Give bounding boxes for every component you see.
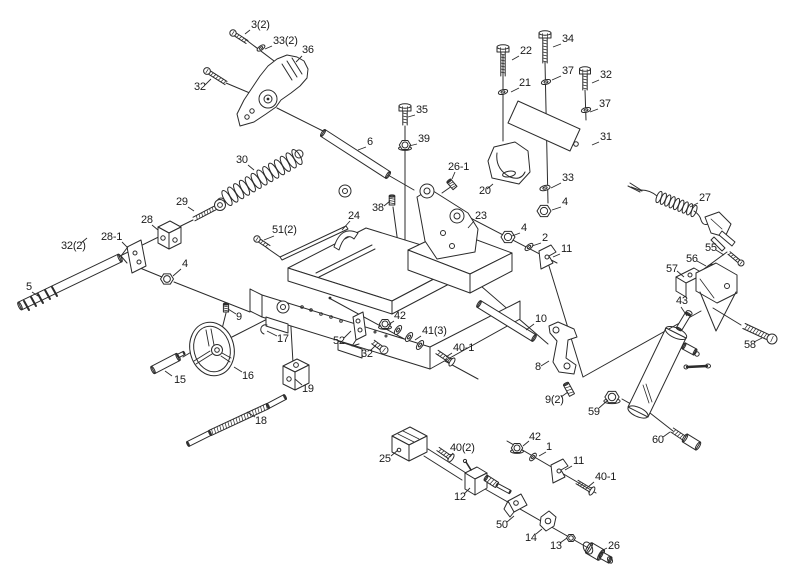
part-label-14: 14 (525, 532, 537, 544)
part-label-56: 56 (686, 253, 698, 265)
part-label-35: 35 (416, 104, 428, 116)
part-label-40-2: 40(2) (450, 442, 475, 454)
diagram-canvas: 3(2)33(2)363230292828-132(2)546353926-13… (0, 0, 792, 574)
part-label-6: 6 (367, 136, 373, 148)
part-label-25: 25 (379, 453, 391, 465)
part-label-33: 33 (562, 172, 574, 184)
part-label-24: 24 (348, 210, 360, 222)
part-label-19: 19 (302, 383, 314, 395)
part-label-52: 52 (333, 335, 345, 347)
part-label-1: 1 (546, 441, 552, 453)
part-label-8: 8 (535, 361, 541, 373)
part-label-18: 18 (255, 415, 267, 427)
part-label-36: 36 (302, 44, 314, 56)
part-label-10: 10 (535, 313, 547, 325)
part-label-17: 17 (277, 333, 289, 345)
part-label-21: 21 (519, 77, 531, 89)
part-label-39: 39 (418, 133, 430, 145)
part-label-12: 12 (454, 491, 466, 503)
part-label-4-b: 4 (521, 222, 527, 234)
part-label-9-2: 9(2) (545, 394, 564, 406)
part-label-57: 57 (666, 263, 678, 275)
part-label-59: 59 (588, 406, 600, 418)
part-label-42-bot: 42 (529, 431, 541, 443)
part-label-4-a: 4 (562, 196, 568, 208)
part-label-40-1-a: 40-1 (453, 342, 474, 354)
part-label-37-a: 37 (562, 65, 574, 77)
part-label-4-left: 4 (182, 258, 188, 270)
part-label-28-1: 28-1 (101, 231, 122, 243)
part-label-58: 58 (744, 339, 756, 351)
part-label-28: 28 (141, 214, 153, 226)
part-label-40-1-b: 40-1 (595, 471, 616, 483)
part-label-2: 2 (542, 232, 548, 244)
part-label-26-1: 26-1 (448, 161, 469, 173)
part-label-13: 13 (550, 540, 562, 552)
part-label-5: 5 (26, 281, 32, 293)
part-label-60: 60 (652, 434, 664, 446)
part-label-29: 29 (176, 196, 188, 208)
part-label-9: 9 (236, 311, 242, 323)
part-label-16: 16 (242, 370, 254, 382)
part-label-26-knob: 26 (608, 540, 620, 552)
part-label-41-3: 41(3) (422, 325, 447, 337)
part-label-32-tl: 32 (194, 81, 206, 93)
part-label-23: 23 (475, 210, 487, 222)
part-label-27: 27 (699, 192, 711, 204)
part-label-50: 50 (496, 519, 508, 531)
part-label-42-top: 42 (394, 310, 406, 322)
part-label-3-2: 3(2) (251, 19, 270, 31)
part-label-51-2: 51(2) (272, 224, 297, 236)
exploded-parts-diagram: 3(2)33(2)363230292828-132(2)546353926-13… (0, 0, 792, 574)
part-label-31: 31 (600, 131, 612, 143)
part-label-30: 30 (236, 154, 248, 166)
part-label-11-bot: 11 (573, 455, 584, 467)
part-label-20: 20 (479, 185, 491, 197)
part-label-11-mid: 11 (561, 243, 572, 255)
part-label-34: 34 (562, 33, 574, 45)
part-label-22: 22 (520, 45, 532, 57)
part-label-32-r: 32 (600, 69, 612, 81)
part-label-38: 38 (372, 202, 384, 214)
part-label-43: 43 (676, 295, 688, 307)
part-label-15: 15 (174, 374, 186, 386)
part-label-33-2: 33(2) (273, 35, 298, 47)
part-label-32-2: 32(2) (61, 240, 86, 252)
part-label-55: 55 (705, 242, 717, 254)
part-label-37-b: 37 (599, 98, 611, 110)
part-label-32-b: 32 (361, 348, 373, 360)
